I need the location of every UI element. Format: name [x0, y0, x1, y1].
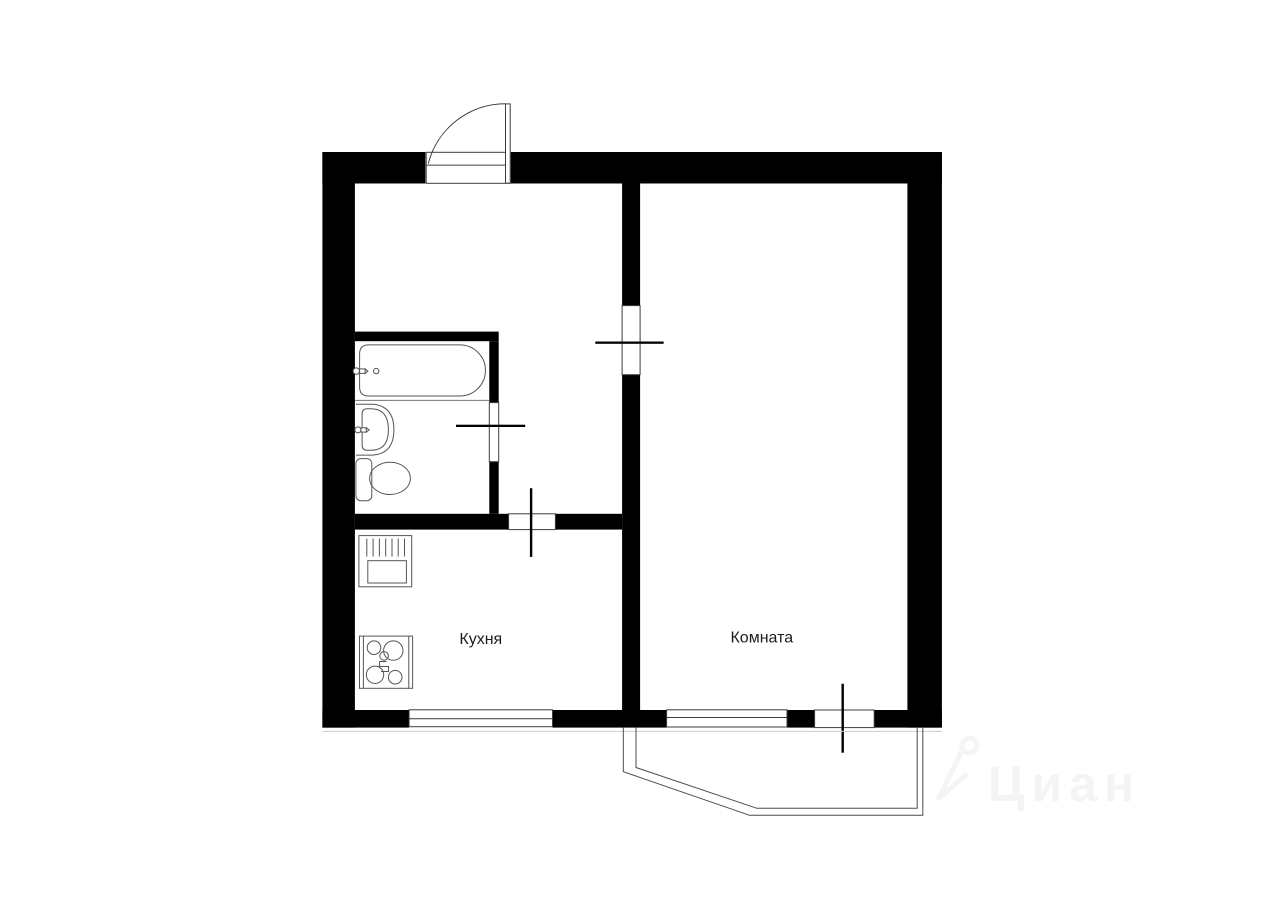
svg-text:Циан: Циан [988, 756, 1141, 812]
svg-text:Комната: Комната [730, 629, 793, 646]
svg-text:Кухня: Кухня [459, 631, 502, 648]
